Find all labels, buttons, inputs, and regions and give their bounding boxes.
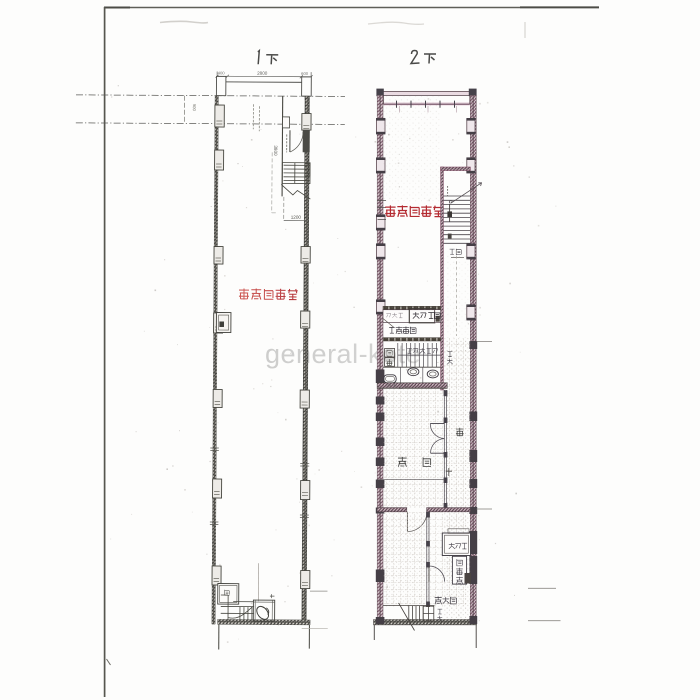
svg-text:600: 600 — [301, 71, 309, 76]
svg-text:400: 400 — [218, 71, 226, 76]
svg-text:2800: 2800 — [257, 71, 268, 76]
svg-text:900: 900 — [192, 104, 197, 112]
svg-text:3800: 3800 — [273, 145, 278, 156]
svg-text:1200: 1200 — [291, 215, 302, 220]
